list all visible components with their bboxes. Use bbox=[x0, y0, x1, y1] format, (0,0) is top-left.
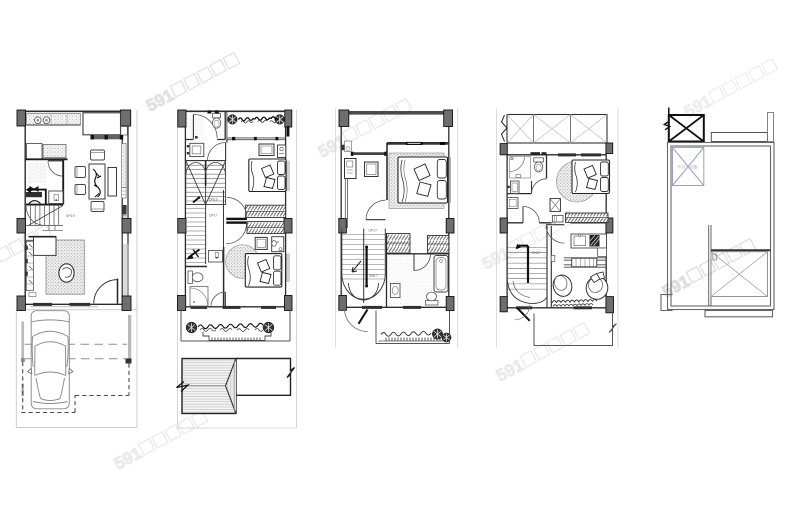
svg-text:UP17: UP17 bbox=[209, 214, 218, 218]
svg-text:UP17: UP17 bbox=[369, 229, 378, 233]
svg-text:DN19: DN19 bbox=[209, 198, 218, 202]
svg-text:KP19: KP19 bbox=[66, 214, 75, 218]
svg-text:DN17: DN17 bbox=[369, 274, 378, 278]
svg-text:不計入坪數: 不計入坪數 bbox=[677, 164, 699, 171]
svg-text:Gq: Gq bbox=[552, 222, 556, 226]
svg-text:DN27: DN27 bbox=[532, 251, 541, 255]
